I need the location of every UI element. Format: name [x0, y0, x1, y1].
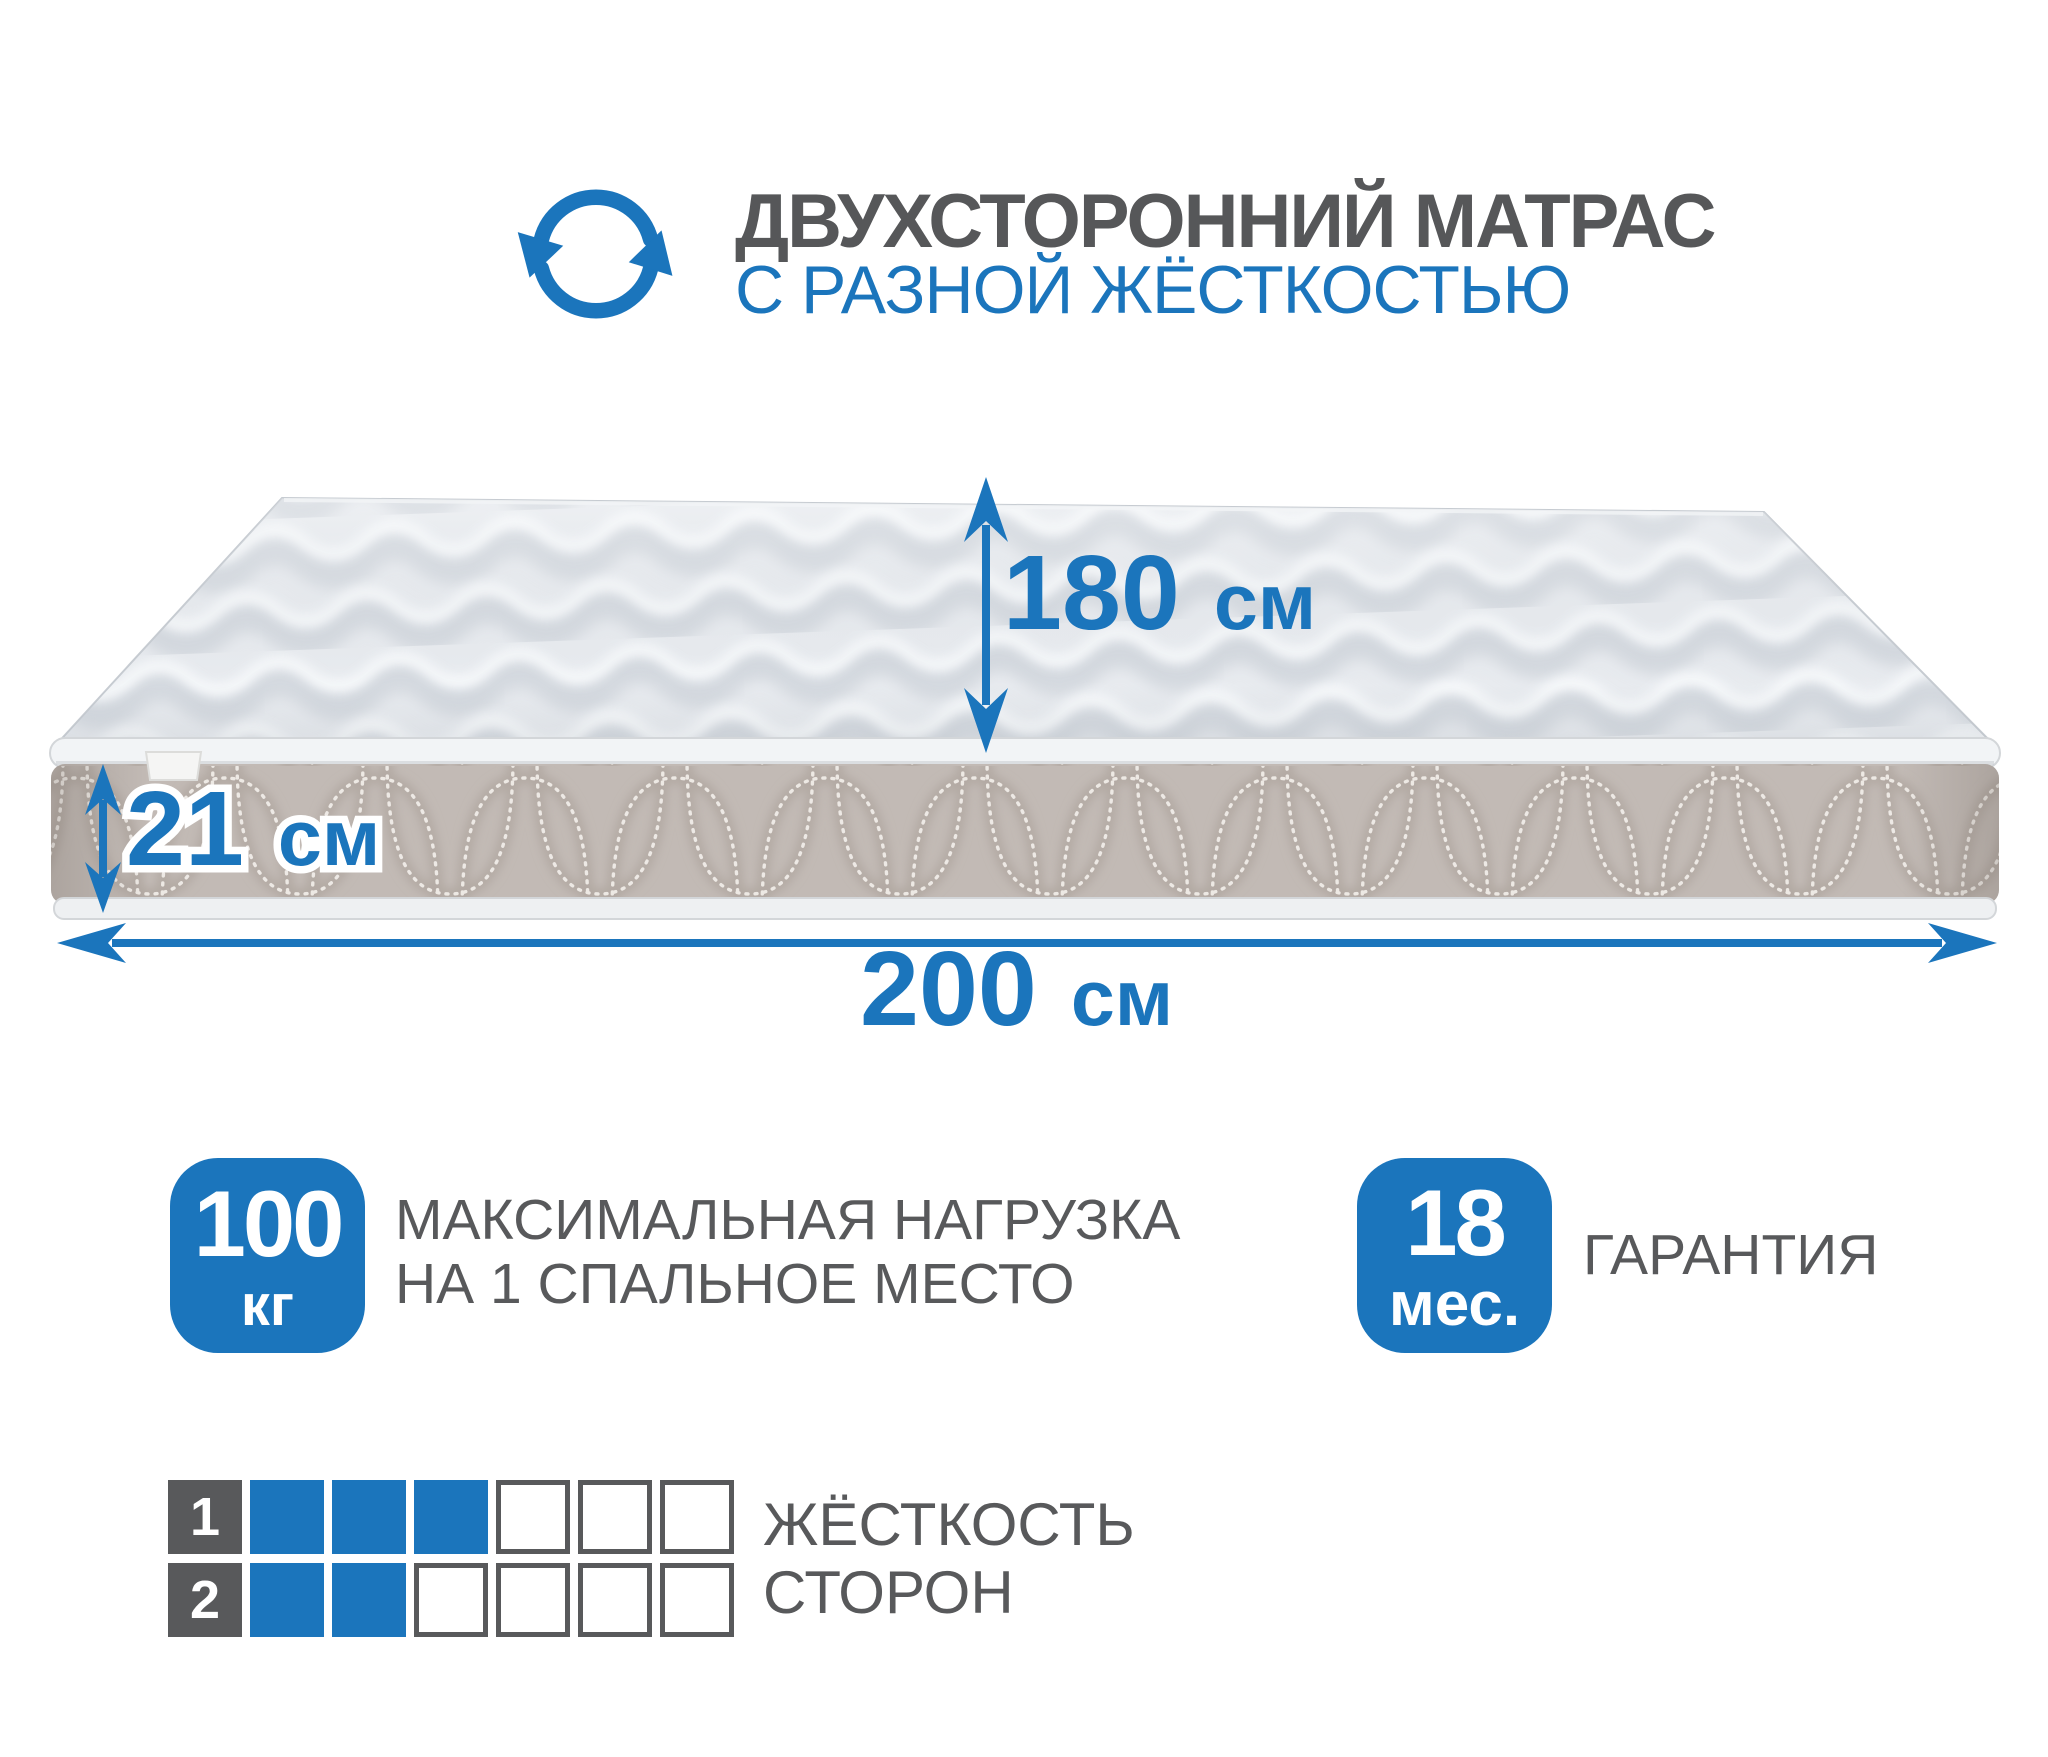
- firmness-cell: [414, 1563, 488, 1637]
- dimension-width-label: 180см: [1003, 540, 1316, 646]
- firmness-cell: [414, 1480, 488, 1554]
- max-load-badge: 100 кг: [170, 1158, 365, 1353]
- firmness-cell: [660, 1563, 734, 1637]
- max-load-label-line1: МАКСИМАЛЬНАЯ НАГРУЗКА: [395, 1188, 1180, 1252]
- dimension-height-label: 21см 21см: [126, 776, 380, 882]
- dimension-width-value: 180: [1003, 540, 1180, 646]
- warranty-unit: мес.: [1389, 1274, 1520, 1336]
- mattress-top-piping: [50, 738, 2000, 768]
- firmness-cells-2: [250, 1563, 734, 1637]
- firmness-cell: [332, 1563, 406, 1637]
- firmness-cell: [496, 1480, 570, 1554]
- dimension-height-value: 21: [126, 776, 244, 882]
- firmness-cell: [578, 1563, 652, 1637]
- mattress-bottom-piping: [54, 898, 1996, 919]
- firmness-cell: [578, 1480, 652, 1554]
- firmness-cells-1: [250, 1480, 734, 1554]
- max-load-label-line2: НА 1 СПАЛЬНОЕ МЕСТО: [395, 1252, 1180, 1316]
- firmness-cell: [250, 1563, 324, 1637]
- firmness-row-1: 1: [168, 1480, 734, 1554]
- max-load-unit: кг: [241, 1277, 294, 1335]
- firmness-cell: [496, 1563, 570, 1637]
- warranty-label: ГАРАНТИЯ: [1583, 1223, 1878, 1287]
- warranty-value: 18: [1405, 1176, 1504, 1270]
- firmness-cell: [250, 1480, 324, 1554]
- dimension-length-value: 200: [860, 936, 1037, 1042]
- dimension-length-label: 200см: [860, 936, 1173, 1042]
- warranty-badge: 18 мес.: [1357, 1158, 1552, 1353]
- dimension-width-unit: см: [1214, 562, 1316, 641]
- dimension-height-unit: см: [278, 798, 380, 877]
- firmness-cell: [660, 1480, 734, 1554]
- firmness-label-line2: СТОРОН: [763, 1563, 1014, 1623]
- firmness-side-2-number: 2: [168, 1563, 242, 1637]
- firmness-side-1-number: 1: [168, 1480, 242, 1554]
- firmness-row-2: 2: [168, 1563, 734, 1637]
- max-load-label: МАКСИМАЛЬНАЯ НАГРУЗКА НА 1 СПАЛЬНОЕ МЕСТ…: [395, 1188, 1180, 1316]
- max-load-value: 100: [194, 1177, 342, 1271]
- firmness-label-line1: ЖЁСТКОСТЬ: [763, 1495, 1135, 1555]
- dimension-length-unit: см: [1071, 958, 1173, 1037]
- firmness-cell: [332, 1480, 406, 1554]
